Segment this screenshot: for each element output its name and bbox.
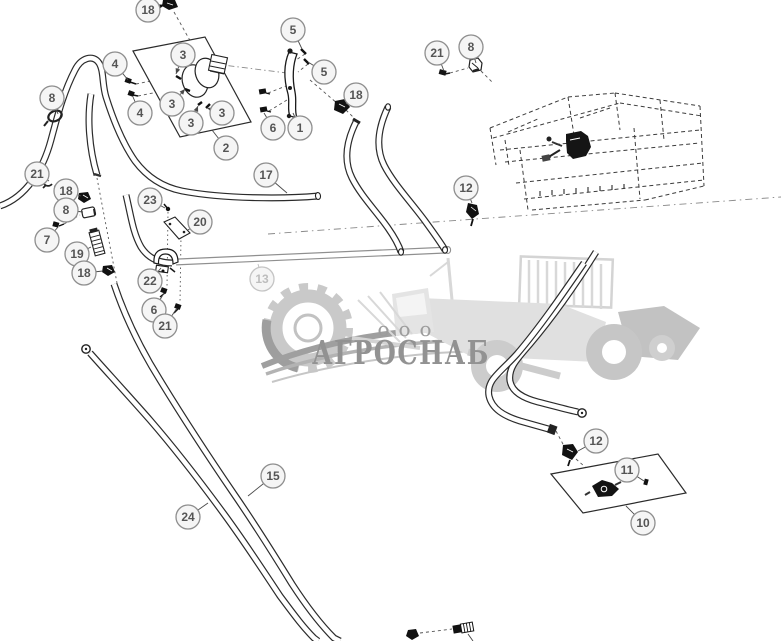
fitting-18-top: [162, 0, 178, 10]
bolt-21-top-right: [439, 69, 450, 76]
callout-number: 18: [59, 184, 73, 198]
callout-6[interactable]: 6: [261, 113, 285, 140]
callout-number: 5: [321, 65, 328, 79]
hose-stub-stack: [89, 94, 101, 176]
callout-7[interactable]: 7: [35, 227, 59, 252]
bolts-6-bracket: [259, 88, 271, 112]
callout-number: 7: [44, 233, 51, 247]
alignment-lines: [215, 64, 781, 234]
callout-number: 17: [259, 168, 273, 182]
callout-number: 8: [468, 40, 475, 54]
callout-22[interactable]: 22: [138, 268, 162, 293]
screws-5: [301, 49, 309, 64]
callout-17[interactable]: 17: [254, 163, 287, 193]
callout-number: 3: [219, 106, 226, 120]
connector-8-stack: [81, 207, 96, 219]
fitting-18-stack-upper: [78, 192, 91, 203]
callout-4[interactable]: 4: [103, 52, 128, 80]
callout-number: 8: [49, 91, 56, 105]
bolt-6-lower: [160, 287, 168, 297]
tube-13: [176, 247, 451, 262]
callout-24[interactable]: 24: [176, 503, 208, 529]
callout-number: 24: [181, 510, 195, 524]
fitting-12-lower: [562, 444, 578, 466]
callout-layer: 1844333325561182181282118871918232022621…: [25, 0, 655, 535]
hose-24: [82, 345, 318, 641]
callout-number: 6: [270, 121, 277, 135]
fitting-19-ribbed: [88, 227, 105, 256]
bracket-1: [285, 48, 297, 118]
callout-13[interactable]: 13: [250, 264, 274, 291]
callout-number: 3: [188, 116, 195, 130]
callout-number: 18: [141, 3, 155, 17]
callout-number: 12: [459, 181, 473, 195]
callout-number: 21: [158, 319, 172, 333]
callout-number: 19: [70, 247, 84, 261]
callout-number: 10: [636, 516, 650, 530]
bolts-4: [124, 77, 138, 97]
callout-number: 4: [137, 106, 144, 120]
callout-20[interactable]: 20: [188, 210, 212, 234]
parts-diagram-page: ооо АГРОСНАБ: [0, 0, 781, 641]
callout-2[interactable]: 2: [212, 130, 238, 160]
callout-number: 12: [589, 434, 603, 448]
bolt-7: [52, 221, 64, 227]
callout-12[interactable]: 12: [578, 429, 608, 453]
callout-number: 6: [151, 303, 158, 317]
callout-number: 23: [143, 193, 157, 207]
callout-number: 22: [143, 274, 157, 288]
callout-4[interactable]: 4: [128, 97, 152, 125]
exploded-parts-diagram: ооо АГРОСНАБ: [0, 0, 781, 641]
callout-18[interactable]: 18: [136, 0, 164, 22]
callout-10[interactable]: 10: [626, 506, 655, 535]
chassis-frame: [490, 93, 704, 210]
callout-number: 18: [77, 266, 91, 280]
callout-number: 15: [266, 469, 280, 483]
callout-21[interactable]: 21: [25, 162, 49, 186]
callout-number: 5: [290, 23, 297, 37]
callout-number: 8: [63, 203, 70, 217]
callout-number: 3: [180, 48, 187, 62]
fitting-bottom-right: [452, 622, 473, 641]
callout-15[interactable]: 15: [248, 464, 285, 496]
callout-number: 2: [223, 141, 230, 155]
callout-number: 1: [297, 121, 304, 135]
callout-number: 11: [621, 463, 634, 477]
watermark-company-name: АГРОСНАБ: [312, 333, 490, 372]
callout-5[interactable]: 5: [308, 60, 336, 84]
fitting-bottom-left: [406, 629, 419, 640]
frame-valve: [541, 131, 591, 162]
callout-number: 3: [169, 97, 176, 111]
callout-21[interactable]: 21: [425, 41, 449, 71]
callout-5[interactable]: 5: [281, 18, 305, 49]
callout-18[interactable]: 18: [72, 261, 103, 285]
fitting-12-upper: [466, 203, 479, 226]
callout-number: 18: [349, 88, 363, 102]
callout-18[interactable]: 18: [344, 83, 368, 107]
watermark: ооо АГРОСНАБ: [262, 256, 700, 392]
callout-8[interactable]: 8: [54, 198, 83, 222]
callout-number: 21: [430, 46, 444, 60]
callout-number: 21: [30, 167, 44, 181]
callout-23[interactable]: 23: [138, 188, 165, 212]
fitting-18-stack-lower: [102, 265, 115, 276]
callout-12[interactable]: 12: [454, 176, 478, 203]
callout-number: 13: [255, 272, 269, 286]
callout-number: 4: [112, 57, 119, 71]
callout-number: 20: [193, 215, 207, 229]
